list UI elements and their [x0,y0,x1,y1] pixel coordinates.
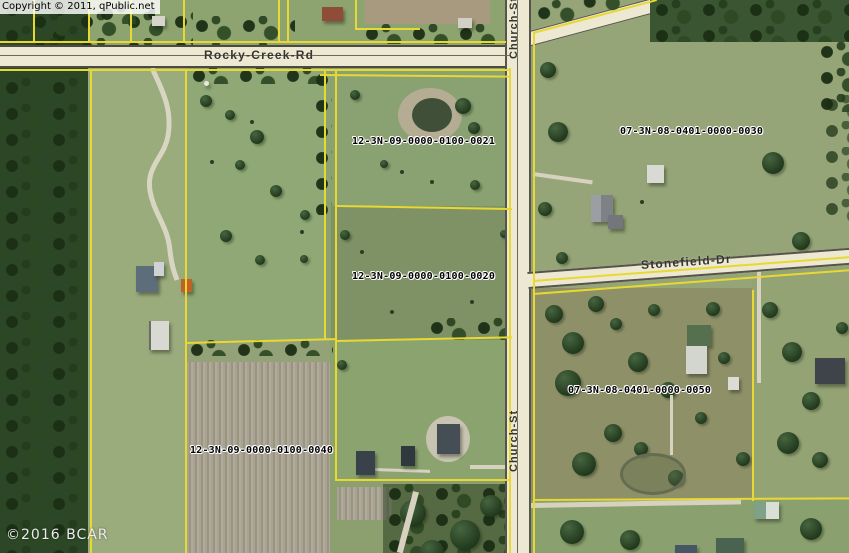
tree [777,432,799,454]
tree-row-northeast [650,0,849,42]
tree [560,520,584,544]
tree [340,230,350,240]
tree [782,342,802,362]
tree [604,424,622,442]
house-green-roof [687,325,711,346]
building [458,18,472,28]
tree [588,296,604,312]
tree [350,90,360,100]
shed-white [204,81,209,86]
house-porch [154,262,164,276]
tree [620,530,640,550]
tree [836,322,848,334]
plowed-field-0040 [187,362,330,553]
road-label-church-st-bottom: Church-St [508,378,520,472]
parcel-line [185,70,187,553]
tree [538,202,552,216]
field-speck [430,180,434,184]
tree [628,352,648,372]
tree [548,122,568,142]
parcel-line [90,70,92,553]
aerial-parcel-map[interactable]: Rocky-Creek-Rd Stonefield-Dr Church-St C… [0,0,849,553]
tree [802,392,820,410]
parcel-label-0040: 12-3N-09-0000-0100-0040 [190,445,333,456]
driveway [757,268,761,383]
tree [380,160,388,168]
parcel-line [355,0,357,30]
tree [800,518,822,540]
tree [762,152,784,174]
parcel-line [287,0,289,42]
tree [572,452,596,476]
tree [468,122,480,134]
tree [455,98,471,114]
building [152,16,165,26]
field-speck [250,120,254,124]
copyright-bcar: ©2016 BCAR [6,527,109,543]
tree [540,62,556,78]
house-white [686,346,707,374]
parcel-line [278,0,280,42]
tree [235,160,245,170]
road-label-church-st-top: Church-St [508,1,520,59]
forest-west [0,0,88,553]
tree [300,255,308,263]
tree [736,452,750,466]
building-red-roof [322,7,343,21]
tree [225,110,235,120]
tree [255,255,265,265]
field-speck [470,300,474,304]
shed-white [647,165,664,183]
field-speck [210,160,214,164]
tree-column [310,70,332,215]
tree [812,452,828,468]
field-speck [300,230,304,234]
parcel-line [183,0,185,42]
field-speck [360,250,364,254]
tree [300,210,310,220]
copyright-qpublic: Copyright © 2011, qPublic.net [0,0,160,14]
parcel-line [355,28,420,30]
trail [670,395,673,455]
shed [401,446,415,466]
parcel-label-0021: 12-3N-09-0000-0100-0021 [352,136,495,147]
tree [706,302,720,316]
tree [648,304,660,316]
parcel-line [324,70,326,340]
tree [792,232,810,250]
road-label-rocky-creek-rd: Rocky-Creek-Rd [204,48,314,62]
tree [220,230,232,242]
tree [450,520,480,550]
tree [470,180,480,190]
tree [718,352,730,364]
field-speck [400,170,404,174]
parcel-label-0020: 12-3N-09-0000-0100-0020 [352,271,495,282]
tree [250,130,264,144]
winding-driveway [120,66,210,296]
tree [562,332,584,354]
parcel-line [509,68,511,553]
parcel-line [0,69,511,71]
tree [610,318,622,330]
pond-outline [620,453,686,495]
building [754,502,779,519]
tree [337,360,347,370]
building [675,545,697,553]
parcel-line [335,70,337,481]
parcel-label-0030: 07-3N-08-0401-0000-0030 [620,126,763,137]
tree [695,412,707,424]
shed-white [149,321,169,350]
tree [762,302,778,318]
house-dark-roof [815,358,845,384]
tree [270,185,282,197]
pond [412,98,452,132]
parcel-label-0050: 07-3N-08-0401-0000-0050 [568,385,711,396]
house-green-roof [716,538,744,553]
field-speck [390,310,394,314]
parcel-line [0,41,506,43]
tree [480,495,502,517]
field-speck [640,200,644,204]
tree [545,305,563,323]
tree-column-east [820,95,849,225]
house [356,451,375,475]
parcel-line [336,479,511,481]
shed [608,215,623,229]
shed-white [728,377,739,390]
tree [556,252,568,264]
parcel-line [752,290,754,501]
house [437,424,460,454]
